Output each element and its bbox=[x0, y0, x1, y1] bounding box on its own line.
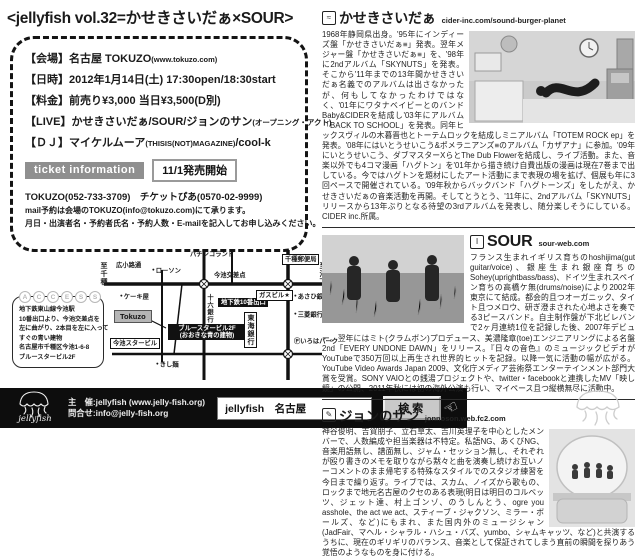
pencil-icon: ✎ bbox=[322, 408, 336, 422]
map-lawson: ローソン bbox=[152, 266, 181, 275]
scribble-icon: ≈ bbox=[322, 11, 336, 25]
access-box: A C C E S S 地下鉄東山線今池駅 10番出口より、今池交差点を 左に曲… bbox=[12, 296, 104, 368]
jellyfish-logo-text: jellyfish bbox=[16, 414, 51, 424]
price-value: 前売り¥3,000 当日¥3,500(D別) bbox=[69, 95, 221, 107]
ticket-phone-numbers: TOKUZO(052-733-3709) チケットぴあ(0570-02-9999… bbox=[25, 189, 293, 203]
venue-label: 【会場】 bbox=[25, 53, 69, 65]
venue-url: (www.tokuzo.com) bbox=[151, 55, 217, 64]
artist-section-jonnoson: ✎ ジョンのサン jonnoson.web.fc2.com bbox=[322, 405, 635, 558]
map-pachinko: パチンコランド bbox=[190, 251, 234, 258]
map-mitsubishi-bank: 三菱銀行 bbox=[294, 310, 323, 319]
datetime-label: 【日時】 bbox=[25, 74, 69, 86]
access-line-exit: 10番出口より、今池交差点を bbox=[19, 315, 98, 325]
artist-section-kasekicider: ≈ かせきさいだぁ cider-inc.com/sound-burger-pla… bbox=[322, 0, 635, 228]
event-row-price: 【料金】前売り¥3,000 当日¥3,500(D別) bbox=[25, 91, 293, 112]
venue-value: 名古屋 TOKUZO bbox=[69, 53, 151, 65]
live-label: 【LIVE】 bbox=[25, 116, 71, 128]
event-row-venue: 【会場】名古屋 TOKUZO(www.tokuzo.com) bbox=[25, 49, 293, 70]
mail-reservation-instructions: 月日・出演者名・予約者氏名・予約人数・E-mailを記入してお申し込みください。 bbox=[25, 218, 293, 229]
map-juroku-bank: 十六銀行 bbox=[206, 294, 213, 323]
jellyfish-logo-icon: jellyfish bbox=[10, 388, 60, 429]
dj-value-2: /cool-k bbox=[235, 137, 270, 149]
map-tokai-bank: 東海銀行 bbox=[244, 312, 257, 348]
contact-line: 問合せ:info@jelly-fish.org bbox=[68, 408, 205, 419]
map-to-chikusa: 至千種 bbox=[100, 262, 107, 286]
organizer-info: 主 催:jellyfish (www.jelly-fish.org) 問合せ:i… bbox=[68, 397, 205, 419]
map-hirokoji-street: 広小路通 bbox=[116, 262, 141, 269]
event-row-dj: 【ＤＪ】マイケルムーア(THISIS(NOT)MAGAZINE)/cool-k bbox=[25, 133, 293, 154]
artist-name: SOUR bbox=[487, 233, 532, 251]
flyer-page: <jellyfish vol.32=かせきさいだぁ×SOUR> 【会場】名古屋 … bbox=[0, 0, 640, 433]
map-imaike-intersection: 今池交差点 bbox=[214, 272, 245, 279]
access-line-turn: 左に曲がり、2本目を左に入って bbox=[19, 324, 98, 334]
live-value: かせきさいだぁ/SOUR/ジョンのサン bbox=[71, 116, 252, 128]
map-tokuzo: Tokuzo bbox=[114, 310, 152, 323]
artist-url: jonnoson.web.fc2.com bbox=[425, 414, 506, 423]
venue-map: 至千種 至池下 広小路通 ローソン パチンコランド 今池交差点 千種郵便局 ケー… bbox=[104, 250, 322, 380]
ticket-information-row: ticket information 11/1発売開始 bbox=[25, 159, 293, 182]
map-cake-shop: ケーキ屋 bbox=[120, 292, 149, 301]
map-gas-building: ガスビル★ bbox=[256, 290, 293, 301]
kasekicider-photo bbox=[469, 31, 635, 123]
page-title: <jellyfish vol.32=かせきさいだぁ×SOUR> bbox=[7, 6, 293, 28]
map-post-office: 千種郵便局 bbox=[282, 254, 319, 265]
organizer-line: 主 催:jellyfish (www.jelly-fish.org) bbox=[68, 397, 205, 408]
artist-header-sour: Ⅰ SOUR sour-web.com bbox=[470, 233, 635, 251]
artist-url: cider-inc.com/sound-burger-planet bbox=[442, 16, 566, 25]
artist-url: sour-web.com bbox=[538, 239, 589, 248]
jonnoson-photo bbox=[549, 429, 635, 527]
access-line-address: 名古屋市千種区今池1-6-8 bbox=[19, 343, 98, 353]
artist-header-jonnoson: ✎ ジョンのサン jonnoson.web.fc2.com bbox=[322, 405, 635, 425]
mail-reservation-note: mail予約は会場のTOKUZO(info@tokuzo.com)にて承ります。 bbox=[25, 205, 293, 216]
access-heading: A C C E S S bbox=[19, 291, 101, 303]
artist-column: ≈ かせきさいだぁ cider-inc.com/sound-burger-pla… bbox=[322, 0, 635, 433]
artist-section-sour: Ⅰ SOUR sour-web.com フランス生まれイギリス育ちのhoshij… bbox=[322, 233, 635, 400]
access-line-building: すぐの青い建物 bbox=[19, 334, 98, 344]
dj-note: (THISIS(NOT)MAGAZINE) bbox=[145, 139, 235, 148]
event-row-datetime: 【日時】2012年1月14日(土) 17:30open/18:30start bbox=[25, 70, 293, 91]
live-note: (オープニング・アクト) bbox=[252, 118, 331, 127]
map-kishimen: きし麺 bbox=[156, 360, 179, 369]
map-imaike-star-building: 今池スタービル bbox=[110, 338, 160, 349]
section-divider bbox=[322, 227, 635, 228]
artist-name: かせきさいだぁ bbox=[339, 8, 436, 28]
access-line-station: 地下鉄東山線今池駅 bbox=[19, 305, 98, 315]
access-line-floor: ブルースタービル2F bbox=[19, 353, 98, 363]
spool-icon: Ⅰ bbox=[470, 235, 484, 249]
event-info-box: 【会場】名古屋 TOKUZO(www.tokuzo.com) 【日時】2012年… bbox=[10, 36, 308, 252]
section-divider bbox=[322, 399, 635, 400]
artist-name: ジョンのサン bbox=[339, 405, 419, 425]
sour-photo bbox=[322, 235, 464, 323]
dj-label: 【ＤＪ】 bbox=[25, 137, 69, 149]
ticket-information-badge: ticket information bbox=[25, 162, 144, 179]
release-date-box: 11/1発売開始 bbox=[152, 159, 237, 182]
datetime-value: 2012年1月14日(土) 17:30open/18:30start bbox=[69, 74, 276, 86]
event-row-live: 【LIVE】かせきさいだぁ/SOUR/ジョンのサン(オープニング・アクト) bbox=[25, 112, 293, 133]
map-bluestar-building: ブルースタービル2F(おおきな青の建物) bbox=[168, 324, 246, 340]
artist-header-kasekicider: ≈ かせきさいだぁ cider-inc.com/sound-burger-pla… bbox=[322, 8, 635, 28]
price-label: 【料金】 bbox=[25, 95, 69, 107]
dj-value: マイケルムーア bbox=[69, 137, 145, 149]
